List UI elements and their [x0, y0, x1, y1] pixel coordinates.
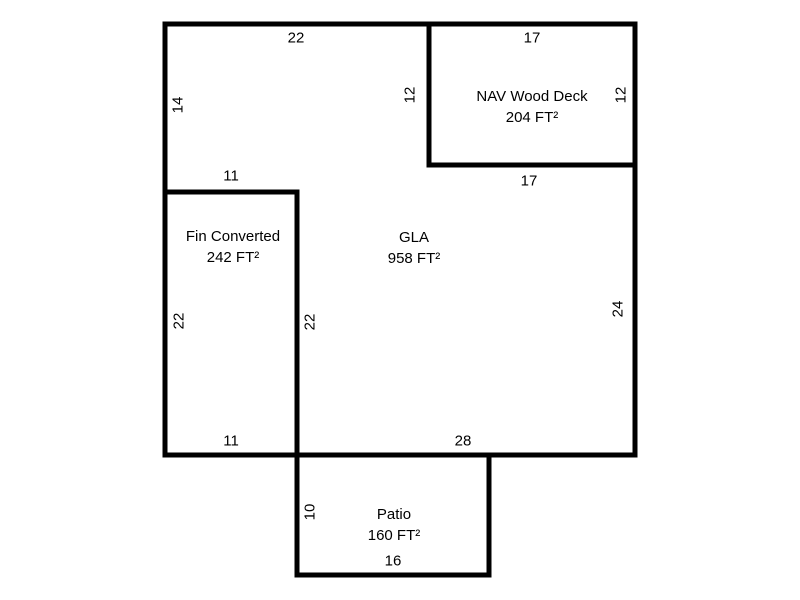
dim-gla-left-upper: 14	[171, 97, 186, 114]
dim-gla-bottom-left: 11	[223, 434, 239, 449]
area-name-nav-wood-deck: NAV Wood Deck	[476, 86, 587, 107]
dim-deck-left: 12	[403, 87, 418, 104]
dim-gla-bottom-right: 28	[455, 434, 472, 449]
dim-gla-right: 24	[611, 301, 626, 318]
dim-fin-left: 22	[172, 313, 187, 330]
area-name-gla: GLA	[388, 227, 441, 248]
dim-deck-bottom: 17	[521, 174, 538, 189]
dim-gla-top: 22	[288, 31, 305, 46]
area-size-nav-wood-deck: 204 FT²	[476, 107, 587, 128]
dim-fin-right: 22	[303, 314, 318, 331]
dim-patio-left: 10	[303, 504, 318, 521]
floorplan-sketch: 22 17 11 17 11 28 16 14 12 12 22 22 24 1…	[0, 0, 800, 600]
area-label-gla: GLA 958 FT²	[388, 227, 441, 269]
area-name-fin-converted: Fin Converted	[186, 226, 280, 247]
area-size-fin-converted: 242 FT²	[186, 247, 280, 268]
dim-fin-top: 11	[223, 169, 239, 184]
area-label-nav-wood-deck: NAV Wood Deck 204 FT²	[476, 86, 587, 128]
area-name-patio: Patio	[368, 504, 421, 525]
dim-patio-bottom: 16	[385, 554, 402, 569]
area-size-patio: 160 FT²	[368, 525, 421, 546]
area-size-gla: 958 FT²	[388, 248, 441, 269]
dim-deck-right: 12	[614, 87, 629, 104]
area-label-patio: Patio 160 FT²	[368, 504, 421, 546]
dim-deck-top: 17	[524, 31, 541, 46]
area-label-fin-converted: Fin Converted 242 FT²	[186, 226, 280, 268]
